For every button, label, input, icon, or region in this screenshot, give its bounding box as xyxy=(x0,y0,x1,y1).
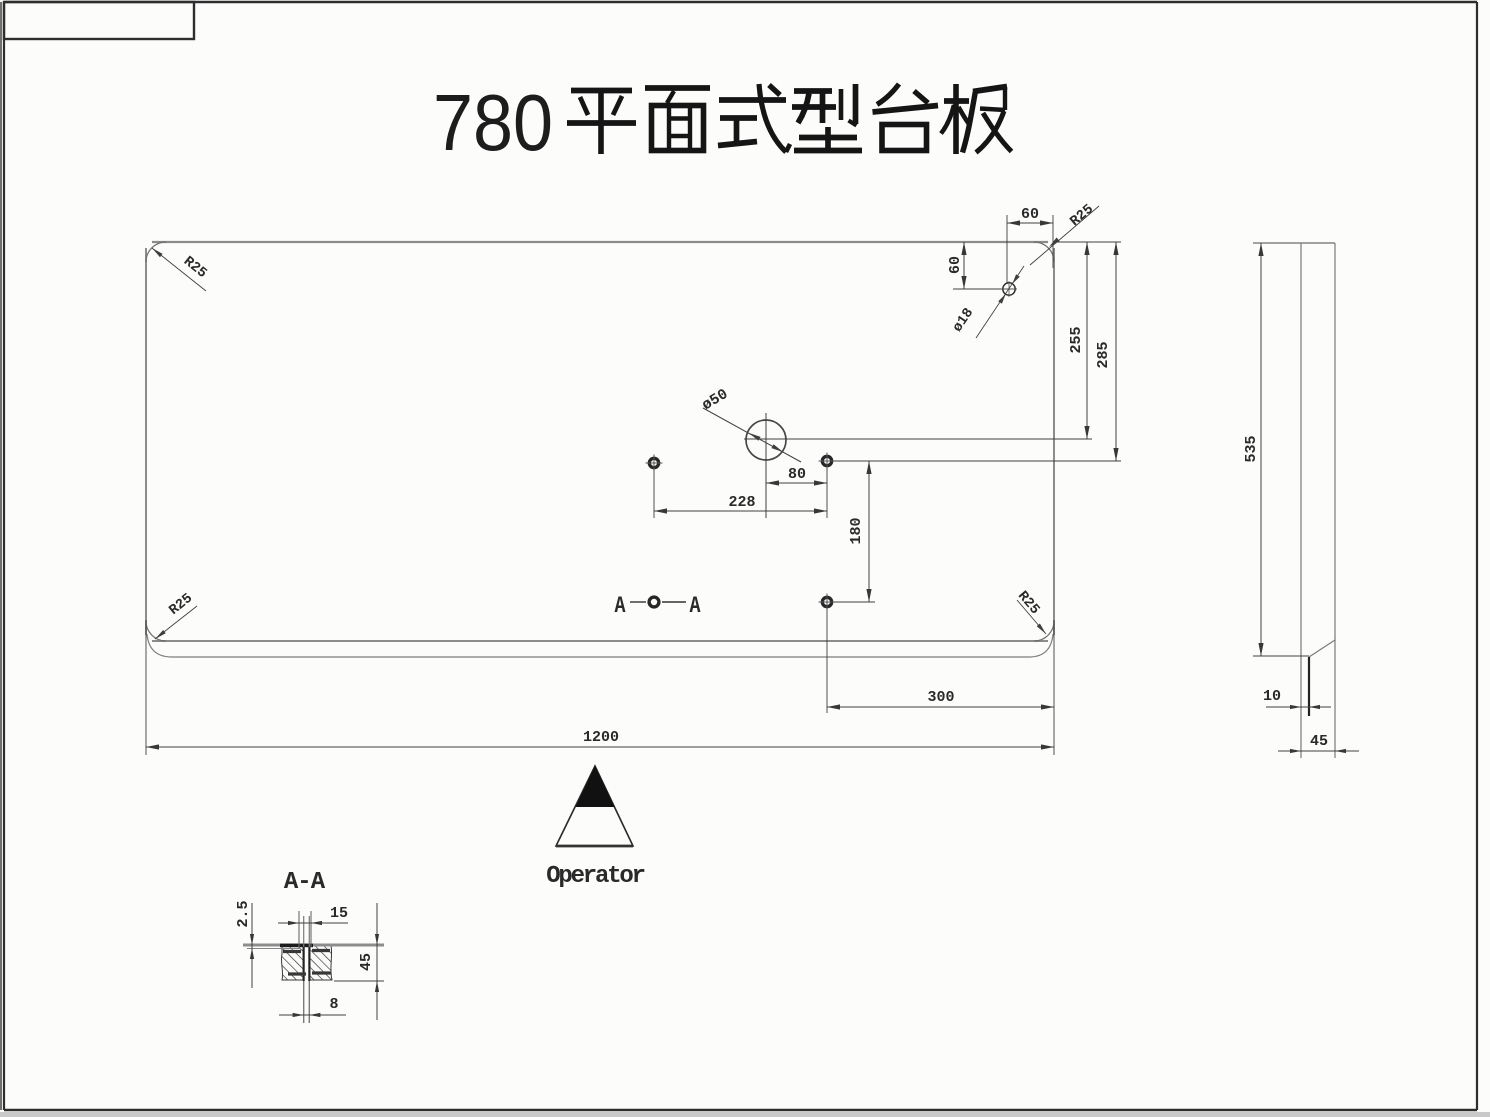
svg-text:A: A xyxy=(690,593,701,619)
svg-text:15: 15 xyxy=(330,905,348,922)
svg-text:A: A xyxy=(615,593,626,619)
svg-text:255: 255 xyxy=(1068,326,1085,353)
svg-text:228: 228 xyxy=(728,494,755,511)
svg-text:285: 285 xyxy=(1095,341,1112,368)
svg-text:80: 80 xyxy=(788,466,806,483)
svg-text:45: 45 xyxy=(1310,733,1328,750)
svg-text:1200: 1200 xyxy=(583,729,619,746)
svg-text:Operator: Operator xyxy=(546,863,644,890)
svg-text:A-A: A-A xyxy=(284,869,326,896)
svg-text:45: 45 xyxy=(358,953,375,971)
svg-text:60: 60 xyxy=(947,256,964,274)
svg-text:180: 180 xyxy=(848,517,865,544)
svg-text:2.5: 2.5 xyxy=(235,900,252,927)
svg-text:60: 60 xyxy=(1021,206,1039,223)
svg-text:535: 535 xyxy=(1243,435,1260,462)
svg-text:780: 780 xyxy=(433,78,553,167)
svg-text:300: 300 xyxy=(927,689,954,706)
svg-text:8: 8 xyxy=(329,996,338,1013)
svg-text:10: 10 xyxy=(1263,688,1281,705)
